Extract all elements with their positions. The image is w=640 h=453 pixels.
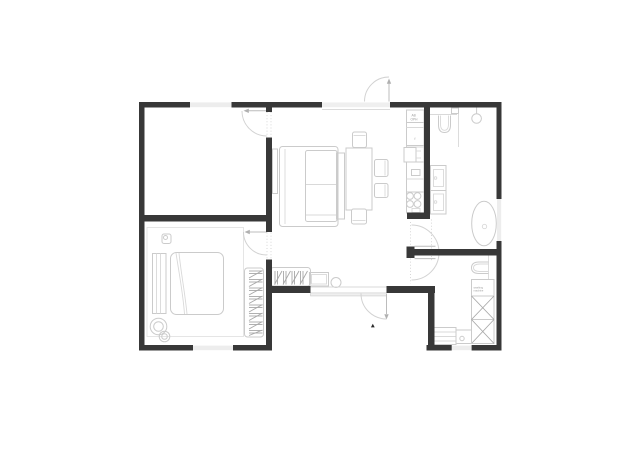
svg-text:OPH: OPH	[411, 118, 419, 122]
svg-text:machine: machine	[474, 289, 484, 293]
svg-text:f: f	[415, 137, 416, 141]
